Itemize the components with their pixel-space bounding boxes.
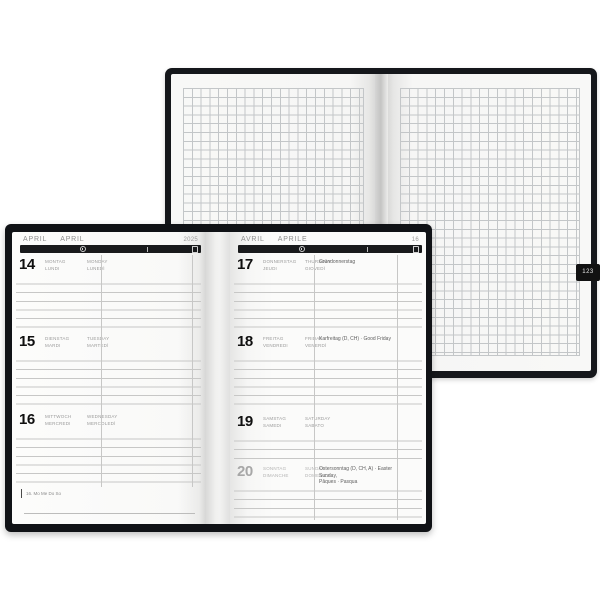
day-name-label: SONNTAG <box>263 466 305 473</box>
clock-icon <box>80 246 86 252</box>
day-name-label: SABATO <box>305 423 349 430</box>
page-number-tab: 123 <box>576 264 600 281</box>
day-name-grid: MONTAGMONDAYLUNDILUNEDÌ <box>45 259 131 273</box>
month-label-en: APRIL <box>60 236 84 243</box>
day-name-label: DIMANCHE <box>263 473 305 480</box>
ruled-lines <box>234 483 422 520</box>
day-name-label: MONDAY <box>87 259 131 266</box>
day-number: 19 <box>237 413 253 430</box>
ruled-lines <box>16 431 201 487</box>
holiday-text: Gründonnerstag <box>319 259 394 266</box>
note-page-icon <box>192 246 198 253</box>
day-name-label: MARDI <box>45 343 87 350</box>
planner-gutter <box>205 232 230 524</box>
day-name-label: SAMEDI <box>263 423 305 430</box>
day-number: 14 <box>19 256 35 273</box>
day-name-label: GIOVEDÌ <box>305 266 349 273</box>
day-name-label: MARTEDÌ <box>87 343 131 350</box>
column-rule <box>397 255 398 520</box>
column-rule <box>314 255 315 520</box>
day-name-grid: SAMSTAGSATURDAYSAMEDISABATO <box>263 416 349 430</box>
column-rule <box>192 255 193 487</box>
day-name-label: LUNEDÌ <box>87 266 131 273</box>
month-label-de: APRIL <box>23 236 47 243</box>
product-photo: 123 APRILAPRIL 2025 14MONTAGMONDAYLUNDIL… <box>0 0 600 600</box>
holiday-entry: Karfreitag (D, CH) · Good Friday <box>319 336 394 343</box>
ruled-lines <box>16 353 201 410</box>
day-name-label: TUESDAY <box>87 336 131 343</box>
divider-tick <box>147 247 148 252</box>
day-number: 20 <box>237 463 253 480</box>
week-number: 16 <box>412 237 419 243</box>
column-rule <box>101 255 102 487</box>
clock-icon <box>299 246 305 252</box>
day-block-15: 15DIENSTAGTUESDAYMARDIMARTEDÌ <box>12 332 205 410</box>
day-name-label: MERCOLEDÌ <box>87 421 131 428</box>
footer-info-text: 16. Mo Me Do So <box>21 489 61 498</box>
year-label: 2025 <box>183 237 198 243</box>
header-bar <box>238 245 422 253</box>
day-name-label: VENERDÌ <box>305 343 349 350</box>
month-label-fr: AVRIL <box>241 236 265 243</box>
planner-pages: APRILAPRIL 2025 14MONTAGMONDAYLUNDILUNED… <box>12 232 426 524</box>
day-number: 17 <box>237 256 253 273</box>
day-number: 18 <box>237 333 253 350</box>
page-header: APRILAPRIL 2025 <box>23 236 198 245</box>
day-name-label: SAMSTAG <box>263 416 305 423</box>
planner-right-page: AVRILAPRILE 16 17DONNERSTAGTHURSDAYJEUDI… <box>230 232 426 524</box>
day-name-label: VENDREDI <box>263 343 305 350</box>
page-footer: 16. Mo Me Do So <box>16 487 201 524</box>
header-bar <box>20 245 201 253</box>
ruled-lines <box>234 276 422 332</box>
day-blocks-left: 14MONTAGMONDAYLUNDILUNEDÌ15DIENSTAGTUESD… <box>12 255 205 487</box>
planner-left-page: APRILAPRIL 2025 14MONTAGMONDAYLUNDILUNED… <box>12 232 205 524</box>
day-name-label: SATURDAY <box>305 416 349 423</box>
day-name-grid: MITTWOCHWEDNESDAYMERCREDIMERCOLEDÌ <box>45 414 131 428</box>
holiday-text: Ostersonntag (D, CH, A) · Easter Sunday, <box>319 466 394 479</box>
day-block-16: 16MITTWOCHWEDNESDAYMERCREDIMERCOLEDÌ <box>12 410 205 487</box>
weekly-planner: APRILAPRIL 2025 14MONTAGMONDAYLUNDILUNED… <box>5 224 432 532</box>
day-name-label: LUNDI <box>45 266 87 273</box>
day-number: 15 <box>19 333 35 350</box>
day-name-label: FREITAG <box>263 336 305 343</box>
ruled-lines <box>234 353 422 412</box>
day-name-grid: DIENSTAGTUESDAYMARDIMARTEDÌ <box>45 336 131 350</box>
page-header: AVRILAPRILE 16 <box>241 236 419 245</box>
footer-rule <box>24 513 195 514</box>
day-name-label: MERCREDI <box>45 421 87 428</box>
holiday-text: Karfreitag (D, CH) · Good Friday <box>319 336 394 343</box>
ruled-lines <box>16 276 201 332</box>
divider-tick <box>367 247 368 252</box>
ruled-lines <box>234 433 422 462</box>
month-label-it: APRILE <box>278 236 308 243</box>
day-name-label: MONTAG <box>45 259 87 266</box>
day-block-14: 14MONTAGMONDAYLUNDILUNEDÌ <box>12 255 205 332</box>
note-page-icon <box>413 246 419 253</box>
holiday-entry: Gründonnerstag <box>319 259 394 266</box>
day-number: 16 <box>19 411 35 428</box>
day-name-label: DONNERSTAG <box>263 259 305 266</box>
day-name-label: JEUDI <box>263 266 305 273</box>
day-name-label: MITTWOCH <box>45 414 87 421</box>
day-name-label: WEDNESDAY <box>87 414 131 421</box>
day-name-label: DIENSTAG <box>45 336 87 343</box>
